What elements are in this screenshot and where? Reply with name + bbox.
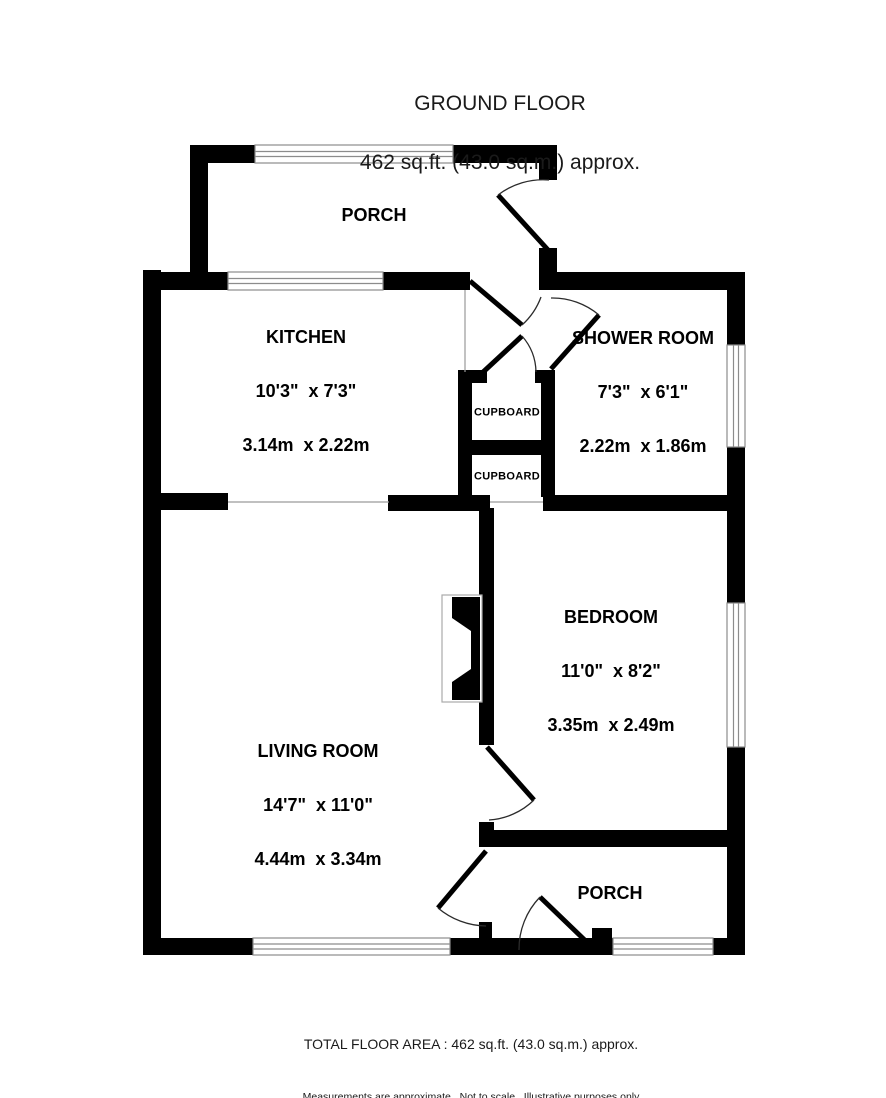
room-dims-metric: 4.44m x 3.34m (254, 850, 381, 868)
room-label-living-room: LIVING ROOM 14'7" x 11'0" 4.44m x 3.34m (254, 706, 381, 904)
bedroom-window (727, 603, 745, 747)
room-name: SHOWER ROOM (572, 329, 714, 347)
room-label-shower-room: SHOWER ROOM 7'3" x 6'1" 2.22m x 1.86m (572, 293, 714, 491)
shower-room-window (727, 345, 745, 447)
room-dims-imperial: 7'3" x 6'1" (572, 383, 714, 401)
room-label-cupboard-bottom: CUPBOARD (474, 436, 540, 519)
room-dims-metric: 3.35m x 2.49m (547, 716, 674, 734)
bedroom-door (487, 747, 534, 820)
room-dims-imperial: 14'7" x 11'0" (254, 796, 381, 814)
room-name: CUPBOARD (474, 408, 540, 419)
floorplan-page: GROUND FLOOR 462 sq.ft. (43.0 sq.m.) app… (0, 0, 886, 1098)
room-name: PORCH (341, 206, 406, 224)
fireplace (442, 595, 482, 702)
porch-bottom-window (613, 938, 713, 955)
plan-footer: TOTAL FLOOR AREA : 462 sq.ft. (43.0 sq.m… (303, 1000, 640, 1098)
living-room-porch-door (438, 851, 486, 926)
cupboard-west-wall (458, 373, 472, 497)
total-floor-area: TOTAL FLOOR AREA : 462 sq.ft. (43.0 sq.m… (303, 1036, 640, 1052)
plan-title: GROUND FLOOR (360, 92, 640, 115)
room-label-porch-bottom: PORCH (577, 848, 642, 938)
kitchen-window (228, 272, 383, 290)
cupboard-east-wall (541, 373, 555, 497)
room-dims-metric: 3.14m x 2.22m (242, 436, 369, 454)
room-label-kitchen: KITCHEN 10'3" x 7'3" 3.14m x 2.22m (242, 292, 369, 490)
porch-bottom-west-jamb (479, 922, 492, 942)
room-label-bedroom: BEDROOM 11'0" x 8'2" 3.35m x 2.49m (547, 572, 674, 770)
cupboard-door (481, 336, 536, 374)
room-name: CUPBOARD (474, 472, 540, 483)
room-dims-imperial: 10'3" x 7'3" (242, 382, 369, 400)
walls (143, 145, 745, 955)
hallway-door (470, 281, 541, 325)
north-wall-shower (540, 272, 745, 290)
west-exterior-wall (143, 270, 161, 955)
divider-wall-east (543, 495, 745, 511)
room-name: KITCHEN (242, 328, 369, 346)
room-dims-metric: 2.22m x 1.86m (572, 437, 714, 455)
divider-wall-west (143, 493, 228, 510)
disclaimer-text: Measurements are approximate. Not to sca… (303, 1091, 640, 1098)
room-name: LIVING ROOM (254, 742, 381, 760)
room-name: PORCH (577, 884, 642, 902)
porch-top-west-wall (190, 145, 208, 290)
room-dims-imperial: 11'0" x 8'2" (547, 662, 674, 680)
bedroom-south-wall (479, 830, 745, 847)
room-label-porch-top: PORCH (341, 170, 406, 260)
living-room-window (253, 938, 450, 955)
room-name: BEDROOM (547, 608, 674, 626)
